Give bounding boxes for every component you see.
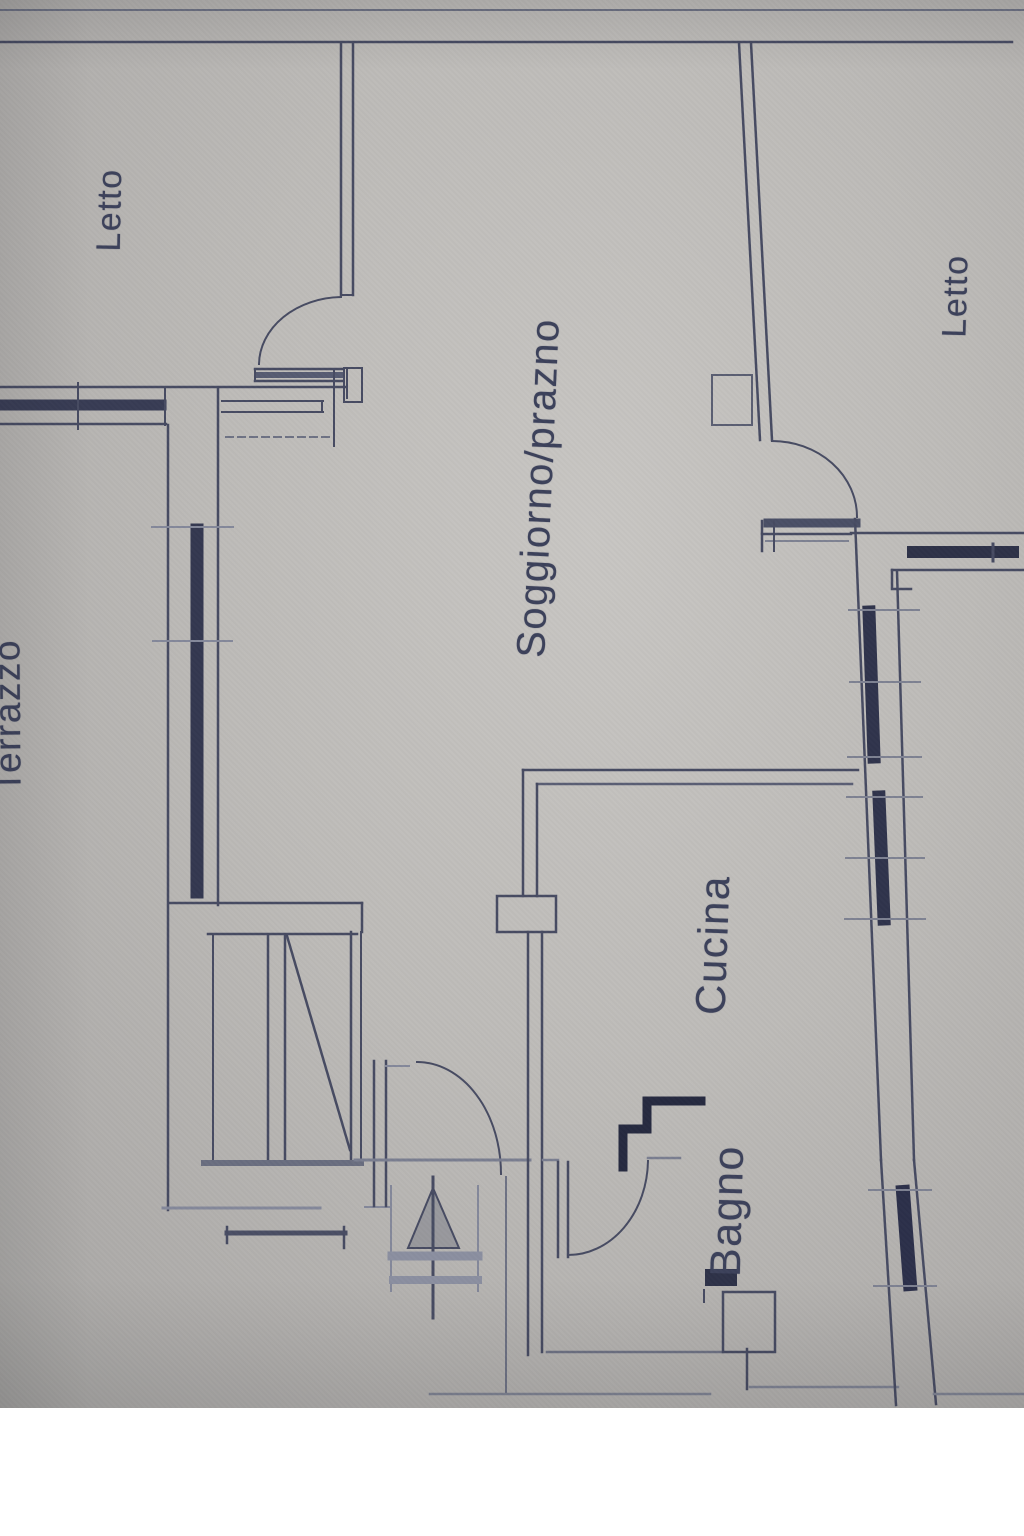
terrazzo-window-wall	[152, 389, 233, 1210]
wall-niche-block	[712, 375, 752, 425]
soggiorno-walls	[497, 770, 858, 1355]
closet-walls	[163, 903, 390, 1248]
stairs	[391, 1177, 478, 1318]
stair-arrow-head	[408, 1188, 459, 1248]
right-bedroom-door-wall	[712, 43, 857, 551]
door-arc-letto-right	[772, 441, 857, 517]
door-arc-entry	[417, 1062, 501, 1174]
window-glazing-right-1	[869, 612, 874, 757]
door-arc-letto-upper	[259, 297, 341, 364]
entry	[355, 1061, 710, 1394]
exterior-top-walls	[0, 10, 1024, 42]
room-label-cucina: Cucina	[687, 874, 740, 1015]
door-arc-bagno	[568, 1161, 648, 1255]
right-window-band	[851, 533, 1024, 589]
wall-block	[723, 1292, 775, 1352]
bagno-door	[543, 1158, 680, 1257]
bedroom-upper-wall	[255, 44, 362, 402]
floor-plan-drawing	[0, 0, 1024, 1408]
white-margin	[0, 1408, 1024, 1536]
window-glazing-right-3	[903, 1192, 910, 1284]
room-label-letto-upper: Letto	[90, 168, 130, 252]
room-label-bagno: Bagno	[702, 1144, 754, 1277]
wall-pillar	[497, 896, 556, 932]
right-exterior-wall	[845, 519, 1024, 1405]
floor-plan-photo: Letto Terrazzo Soggiorno/prazno Cucina B…	[0, 0, 1024, 1536]
bagno-bottom-walls	[547, 1292, 898, 1389]
room-label-terrazzo: Terrazzo	[0, 639, 30, 793]
closet-diagonal	[287, 936, 350, 1150]
room-label-letto-right: Letto	[935, 254, 976, 338]
paper: Letto Terrazzo Soggiorno/prazno Cucina B…	[0, 0, 1024, 1408]
